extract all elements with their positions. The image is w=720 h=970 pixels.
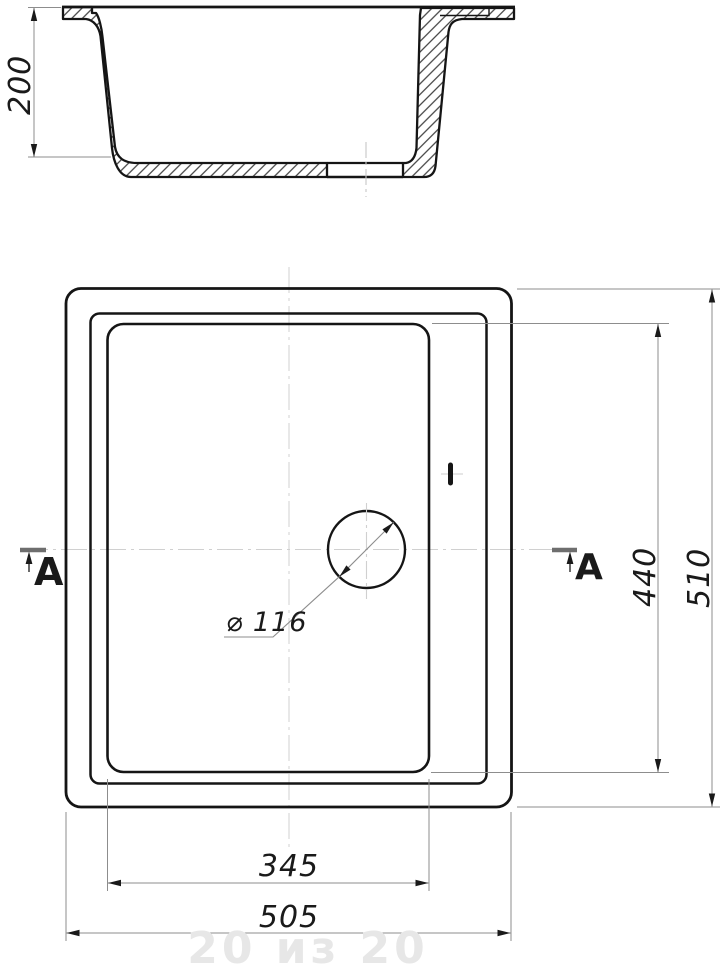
sink-bowl-bottom-edge xyxy=(108,324,430,772)
arrow-up-icon xyxy=(655,324,661,337)
arrow-right-icon xyxy=(416,880,429,886)
section-view: 200 xyxy=(3,7,515,197)
section-marker-right: A xyxy=(552,547,603,588)
section-label-left: A xyxy=(34,550,64,594)
arrow-right-icon xyxy=(498,930,511,936)
faucet-hole-mark xyxy=(441,463,463,486)
dim-outer-length-510: 510 xyxy=(517,289,720,807)
arrow-down-icon xyxy=(655,759,661,772)
technical-drawing-page: 200 ⌀ 116 xyxy=(0,0,720,970)
section-left-wall xyxy=(63,7,327,177)
arrow-down-icon xyxy=(31,144,37,157)
dim-drain-diameter: ⌀ 116 xyxy=(224,522,394,638)
section-right-wall xyxy=(403,8,514,177)
section-label-right: A xyxy=(575,547,603,588)
arrow-up-icon xyxy=(31,8,37,21)
section-arrow-up-icon xyxy=(26,552,33,565)
watermark-text: 20 из 20 xyxy=(187,923,429,970)
depth-dim-label: 200 xyxy=(3,55,38,115)
arrow-left-icon xyxy=(67,930,80,936)
section-marker-left: A xyxy=(20,550,64,594)
dim-bowl-width-345: 345 xyxy=(108,779,430,891)
dim-depth-200: 200 xyxy=(3,8,111,158)
arrow-down-icon xyxy=(709,794,715,807)
bowl-length-label: 440 xyxy=(628,547,663,607)
arrow-up-icon xyxy=(709,290,715,303)
dim-bowl-length-440: 440 xyxy=(431,324,669,773)
section-arrow-up-icon xyxy=(567,552,574,565)
drain-diameter-label: ⌀ 116 xyxy=(226,607,307,638)
sink-drawing-svg: 200 ⌀ 116 xyxy=(0,0,720,970)
plan-view: ⌀ 116 A A 440 xyxy=(20,267,720,941)
bowl-width-label: 345 xyxy=(259,849,319,884)
outer-length-label: 510 xyxy=(682,548,717,608)
arrow-left-icon xyxy=(108,880,121,886)
